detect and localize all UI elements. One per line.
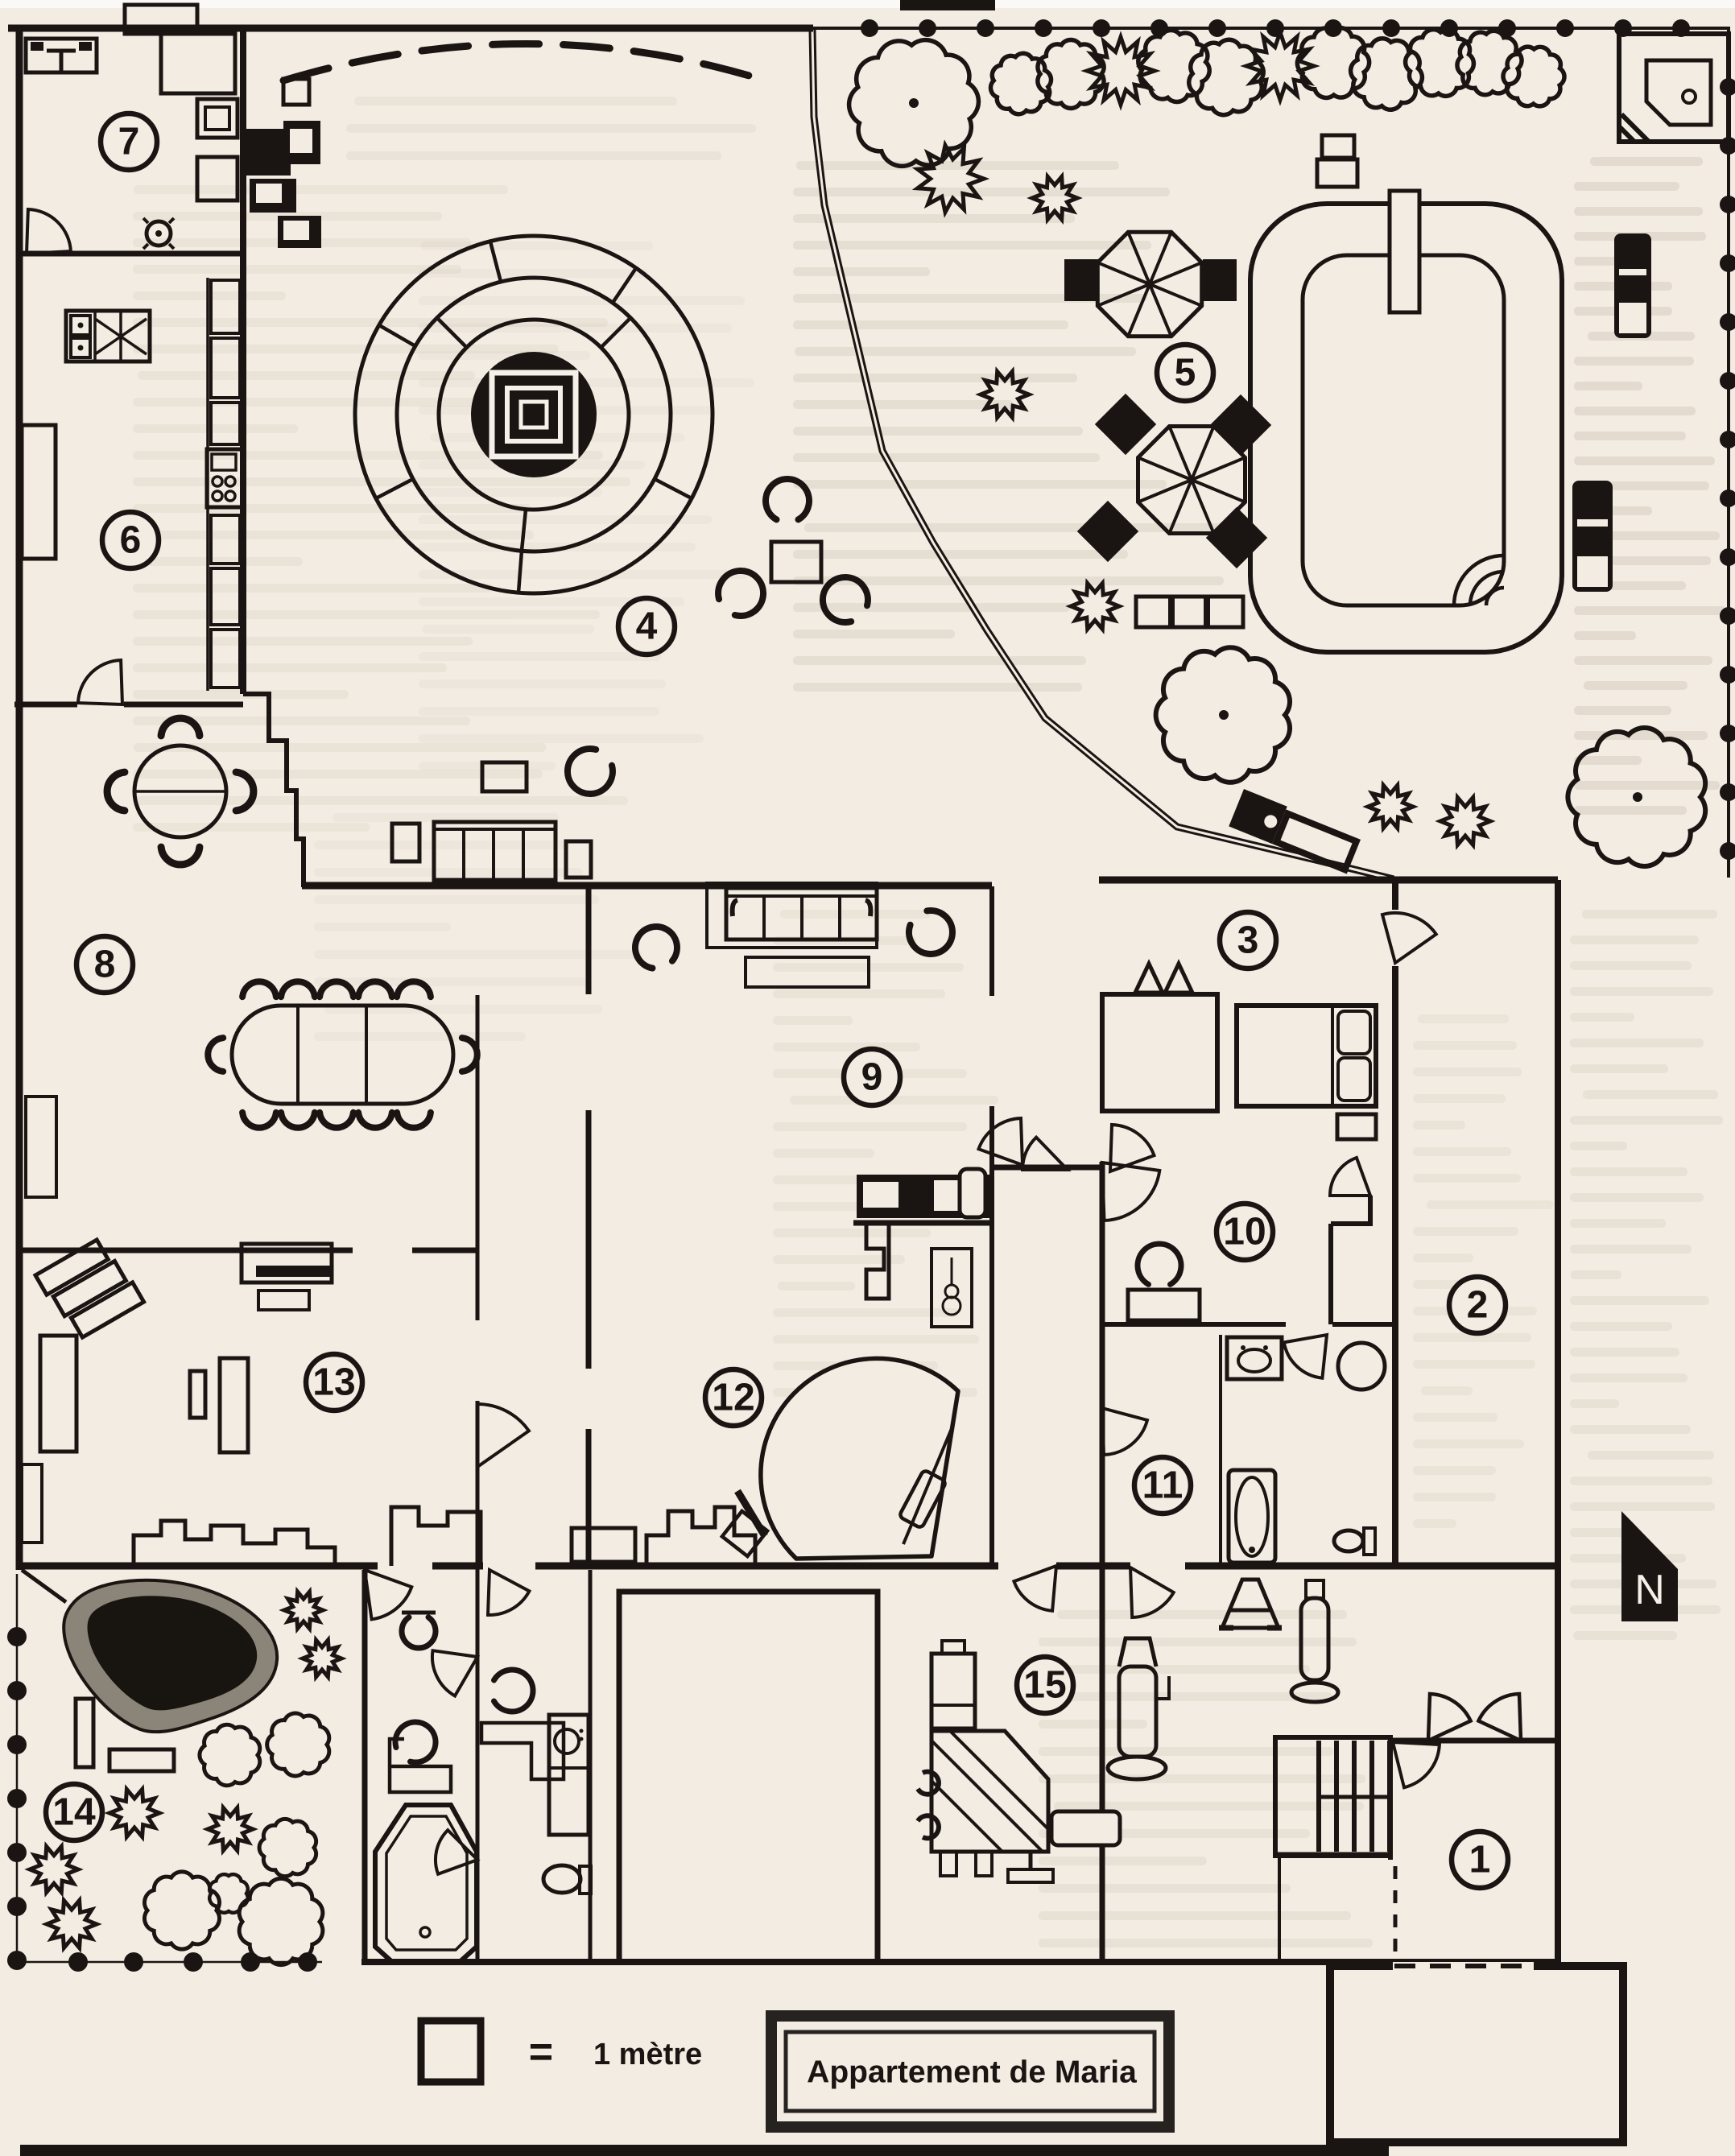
- svg-text:10: 10: [1223, 1210, 1266, 1253]
- svg-text:9: 9: [861, 1055, 883, 1098]
- svg-text:2: 2: [1467, 1283, 1489, 1326]
- svg-text:12: 12: [712, 1376, 754, 1419]
- svg-text:8: 8: [94, 943, 116, 985]
- svg-text:4: 4: [636, 605, 658, 647]
- svg-text:N: N: [1634, 1567, 1665, 1613]
- svg-text:5: 5: [1175, 351, 1196, 394]
- svg-text:14: 14: [52, 1790, 96, 1833]
- svg-text:15: 15: [1023, 1663, 1066, 1706]
- svg-text:6: 6: [120, 518, 142, 561]
- svg-text:=: =: [529, 2029, 553, 2075]
- svg-text:13: 13: [312, 1361, 355, 1403]
- svg-text:7: 7: [118, 120, 140, 163]
- svg-text:11: 11: [1142, 1464, 1184, 1506]
- svg-text:1: 1: [1469, 1838, 1491, 1881]
- svg-text:Appartement de Maria: Appartement de Maria: [807, 2055, 1137, 2089]
- svg-text:1 mètre: 1 mètre: [593, 2038, 702, 2071]
- svg-text:3: 3: [1237, 919, 1259, 961]
